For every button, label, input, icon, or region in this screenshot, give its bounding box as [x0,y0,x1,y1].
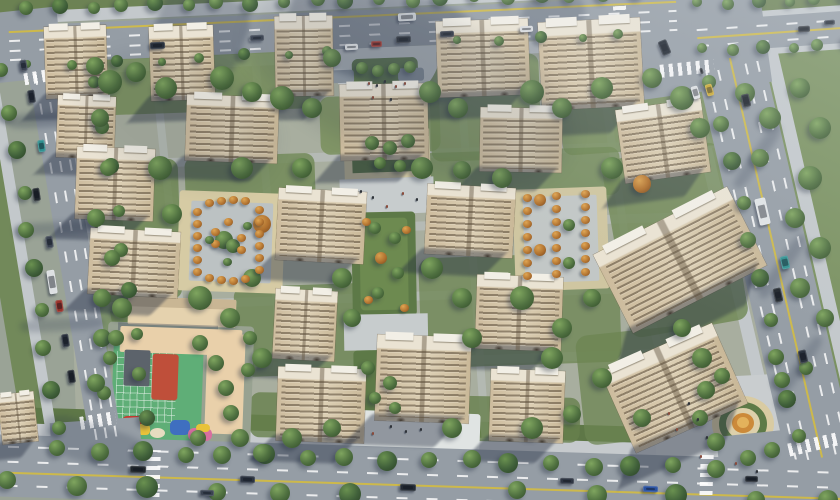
pedestrian [405,430,407,433]
rooftop-penthouse [529,273,555,281]
rooftop-penthouse [546,17,577,27]
shrub [364,296,373,304]
shrub [523,194,532,202]
car-windshield [800,27,808,30]
shrub [237,246,246,254]
pedestrian [372,432,374,435]
tree [374,157,386,169]
car-windshield [747,477,755,480]
shrub [255,242,264,250]
tree [768,349,784,365]
shrub [552,192,561,200]
tree [751,149,769,167]
apartment-tower [272,288,338,361]
shrub [241,197,250,205]
tree [183,0,195,11]
rooftop-penthouse [81,22,100,30]
rooftop-penthouse [497,366,519,374]
tree [192,335,208,351]
car-windshield [758,204,768,218]
tree [790,278,810,298]
car-windshield [660,43,668,52]
tree [52,421,66,435]
tree [583,289,601,307]
tree [809,117,831,139]
tree [220,308,240,328]
car-windshield [57,303,62,309]
tree [798,166,822,190]
tree [713,116,729,132]
tree [421,257,443,279]
tree [103,351,117,365]
tree [1,105,17,121]
tree [132,367,146,381]
ground-patch [737,417,749,428]
tree [462,328,482,348]
tree [563,257,575,269]
tree [790,78,810,98]
shrub [523,246,532,254]
tree [93,289,111,307]
lane-marking [7,484,840,500]
tree [369,222,381,234]
shrub [523,272,532,280]
shrub [205,199,214,207]
shrub [205,236,214,244]
rooftop-penthouse [435,181,462,189]
shrub [237,234,246,242]
rooftop-penthouse [331,365,358,373]
tree [270,483,290,500]
car [150,42,165,50]
car-windshield [39,143,44,149]
rooftop-penthouse [145,228,172,236]
tree [697,43,707,53]
tree [792,429,806,443]
shrub [402,226,411,234]
rooftop-penthouse [63,93,81,100]
tree [339,483,361,500]
shrub [552,205,561,213]
shrub [255,218,264,226]
tree [707,433,725,451]
tree [389,232,401,244]
tree [162,204,182,224]
tree [707,460,725,478]
tree [563,405,581,423]
tree [751,269,769,287]
tree [508,481,526,499]
tree [816,309,834,327]
car-windshield [562,479,571,482]
car [130,466,146,474]
rooftop-penthouse [599,14,630,24]
car [46,270,58,295]
car [400,484,416,492]
shrub [523,207,532,215]
car-windshield [707,87,713,94]
tree [759,107,781,129]
shrub [224,218,233,226]
tree [601,157,623,179]
shrub [217,197,226,205]
rooftop-penthouse [286,185,313,194]
car [240,476,255,484]
car-windshield [21,63,26,69]
car-windshield [34,191,39,198]
tree [188,286,212,310]
pedestrian [372,196,374,199]
car [55,300,64,313]
rooftop-penthouse [434,333,462,343]
shrub [205,274,214,282]
car-windshield [69,373,74,380]
shrub [581,255,590,263]
car-windshield [403,486,413,490]
tree [642,68,662,88]
aerial-site-rendering [0,0,840,500]
pedestrian [735,462,737,465]
car [520,26,533,33]
tree [633,409,651,427]
rooftop-penthouse [83,144,107,152]
tree [300,450,316,466]
pedestrian [420,428,422,431]
tree [727,44,739,56]
tree [136,476,158,498]
pedestrian [668,412,670,415]
tree [35,340,51,356]
tree [377,451,397,471]
shrub [552,218,561,226]
shrub [581,242,590,250]
car [19,60,28,72]
shrub [193,256,202,264]
tree [88,2,100,14]
lane-marking [697,27,840,39]
car [643,486,658,493]
car-windshield [243,478,253,482]
pedestrian [402,192,404,195]
tree [335,448,353,466]
car [200,490,214,496]
tree [697,381,715,399]
tree [369,392,381,404]
shrub [223,258,232,266]
car [32,188,41,202]
tree [392,267,404,279]
tree [121,282,137,298]
rooftop-penthouse [313,288,332,296]
shrub [581,190,590,198]
rooftop-penthouse [154,23,173,31]
shrub [229,196,238,204]
tree [252,348,272,368]
car-windshield [700,69,703,72]
tree [52,0,68,14]
shrub [552,257,561,265]
tree [764,313,778,327]
tree [774,372,790,388]
tree [223,405,239,421]
car-windshield [743,97,749,104]
tree [108,330,124,346]
tree [452,288,472,308]
tree [112,298,132,318]
shrub [523,233,532,241]
shrub [255,206,264,214]
apartment-tower [275,188,367,265]
apartment-tower [0,391,39,444]
car-windshield [29,93,34,100]
pedestrian [386,205,388,208]
shrub [243,222,252,230]
shrub [581,229,590,237]
car-windshield [133,468,143,472]
shrub [400,304,409,312]
tree [785,208,805,228]
tree [87,209,105,227]
rooftop-penthouse [281,286,300,294]
rooftop-penthouse [19,390,30,396]
tree [383,376,397,390]
tree [87,374,105,392]
shrub [211,228,220,236]
tree [42,381,60,399]
rooftop-penthouse [0,392,11,398]
car-windshield [202,491,211,494]
tree [372,287,384,299]
tree [747,491,765,500]
rooftop-penthouse [49,23,68,31]
shrub [362,218,371,226]
shrub [193,232,202,240]
shrub [229,277,238,285]
tree [543,455,559,471]
tree [510,286,534,310]
pedestrian [706,436,708,439]
tree [213,446,231,464]
shrub [193,220,202,228]
shrub [241,275,250,283]
rooftop-penthouse [187,22,206,30]
shrub [552,231,561,239]
tree [692,348,712,368]
tree [18,186,32,200]
tree [552,318,572,338]
tree [620,456,640,476]
car-windshield [646,487,656,490]
tree [756,40,770,54]
tree [323,419,341,437]
tree [208,355,224,371]
tree [35,303,49,317]
tree [591,77,613,99]
tree [190,430,206,446]
tree [389,402,401,414]
rooftop-penthouse [385,331,413,341]
shrub [523,220,532,228]
rooftop-penthouse [285,364,312,372]
tree [218,380,234,396]
shrub [581,203,590,211]
tree [332,268,352,288]
car-windshield [153,44,163,48]
tree [521,417,543,439]
pedestrian [697,418,699,421]
ground-patch [170,420,190,435]
tree [534,244,546,256]
tree [585,458,603,476]
shrub [552,244,561,252]
car-windshield [47,239,52,245]
tree [737,196,751,210]
apartment-tower [615,98,710,183]
tree [343,309,361,327]
pedestrian [756,470,758,473]
tree [113,205,125,217]
car-windshield [775,291,782,299]
shrub [193,208,202,216]
apartment-tower [424,184,516,259]
shrub [581,268,590,276]
tree [442,418,462,438]
car-windshield [782,259,788,266]
tree [91,443,109,461]
tree [67,60,77,70]
tree [714,368,730,384]
car [824,20,835,26]
ground-patch [151,354,179,401]
tree [139,410,155,426]
tree [690,118,710,138]
tree [241,363,255,377]
tree [282,428,302,448]
tree [740,450,756,466]
ground-patch [150,428,165,438]
tree [541,347,563,369]
tree [8,141,26,159]
shrub [255,254,264,262]
pedestrian [360,190,362,193]
pedestrian [688,402,690,405]
car-windshield [800,353,806,360]
rooftop-penthouse [331,188,358,197]
tree [292,158,312,178]
tree [692,410,708,426]
car [61,334,70,348]
car-windshield [63,337,68,344]
tree [104,250,120,266]
tree [231,429,249,447]
shrub [255,230,264,238]
tree [613,29,623,39]
tree [673,319,691,337]
tree [25,259,43,277]
tree [253,444,271,462]
tree [665,457,681,473]
shrub [523,259,532,267]
tree [587,485,607,500]
shrub [217,276,226,284]
car-windshield [826,21,833,24]
tree [809,237,831,259]
rooftop-penthouse [491,16,519,25]
car [745,476,758,482]
tree [563,219,575,231]
tree [375,252,387,264]
car [798,26,810,33]
tree [764,442,780,458]
tree [100,160,116,176]
tree [535,31,547,43]
lane-marking [696,19,840,31]
shrub [193,244,202,252]
car-windshield [692,89,698,96]
tree [361,361,375,375]
pedestrian [676,428,678,431]
tree [49,440,65,456]
tree [133,441,153,461]
tree [592,368,612,388]
tree [534,194,546,206]
tree [243,331,257,345]
car [560,478,574,484]
tree [579,34,587,42]
rooftop-penthouse [484,272,510,280]
pedestrian [416,198,418,201]
shrub [552,270,561,278]
tree [67,476,87,496]
shrub [581,216,590,224]
car-windshield [49,276,56,288]
tree [665,484,687,500]
pedestrian [700,455,702,458]
pedestrian [390,425,392,428]
shrub [255,266,264,274]
rooftop-penthouse [98,225,125,233]
tree [633,175,651,193]
car-windshield [522,27,530,30]
shrub [193,268,202,276]
